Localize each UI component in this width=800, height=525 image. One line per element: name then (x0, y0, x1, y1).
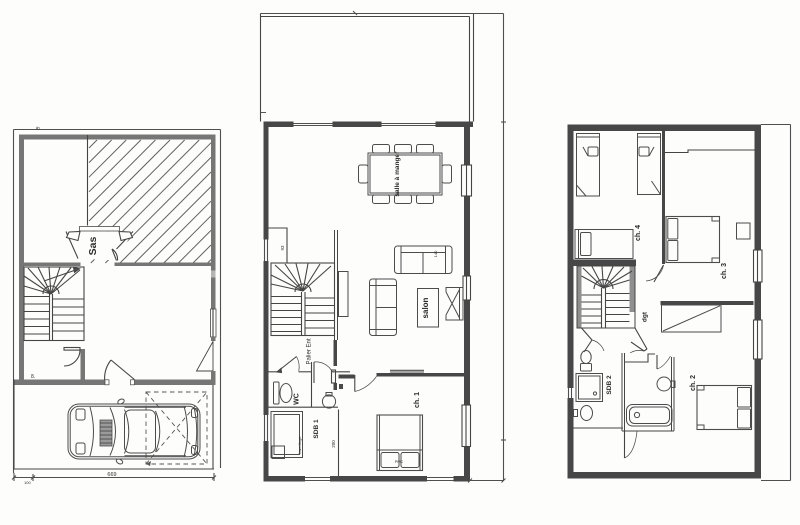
svg-text:lave-linge: lave-linge (297, 436, 302, 454)
svg-text:ch. 3: ch. 3 (721, 263, 728, 279)
svg-text:140: 140 (433, 250, 438, 257)
svg-text:669: 669 (107, 472, 116, 478)
svg-text:100: 100 (24, 480, 31, 485)
svg-text:200: 200 (331, 440, 336, 448)
svg-text:Palier Ent: Palier Ent (307, 338, 313, 364)
svg-text:SDB 2: SDB 2 (606, 375, 613, 395)
svg-text:SDB 1: SDB 1 (313, 419, 320, 439)
svg-text:8.: 8. (31, 374, 35, 380)
svg-text:ch. 1: ch. 1 (414, 392, 421, 408)
svg-text:WC: WC (294, 393, 301, 405)
svg-text:ch. 2: ch. 2 (690, 375, 697, 391)
svg-text:dgt: dgt (642, 311, 649, 322)
svg-text:Sas: Sas (87, 237, 99, 256)
svg-text:salon: salon (421, 297, 430, 318)
svg-text:ch. 4: ch. 4 (635, 225, 642, 241)
svg-text:PMC: PMC (395, 460, 404, 464)
svg-text:salle à manger: salle à manger (394, 151, 401, 197)
svg-text:93: 93 (280, 245, 285, 251)
